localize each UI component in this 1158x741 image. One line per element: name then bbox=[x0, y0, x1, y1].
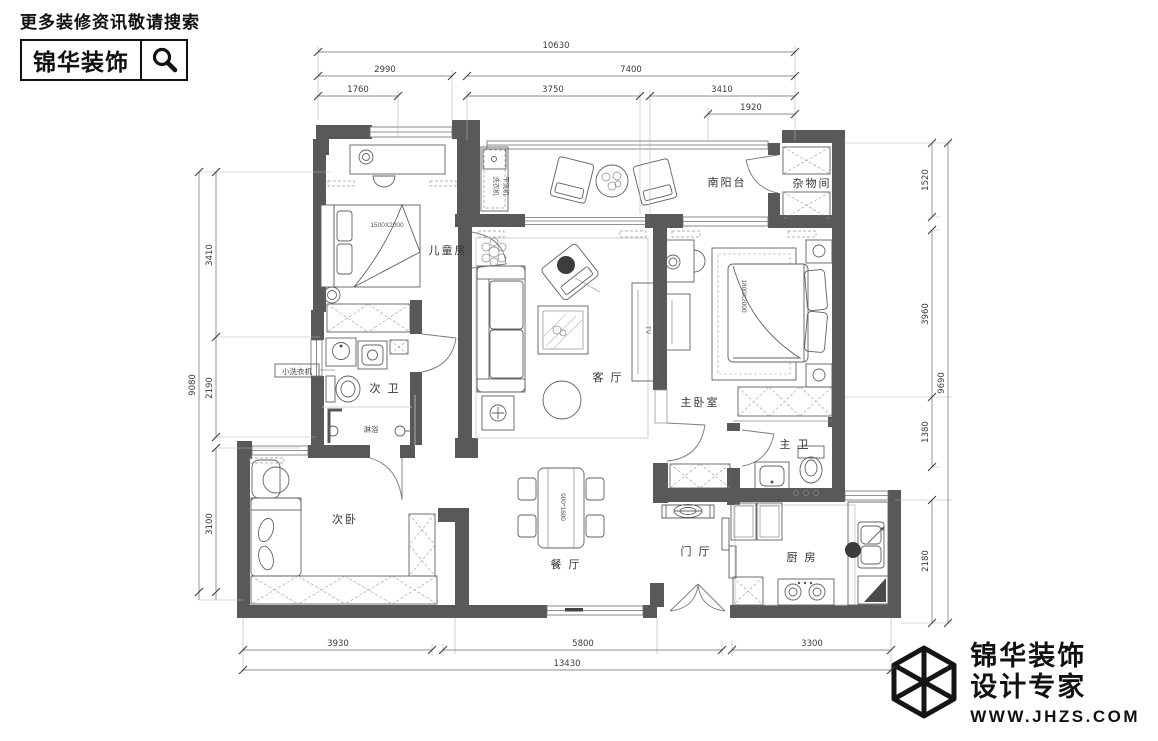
room-label-dining: 餐 厅 bbox=[550, 557, 581, 571]
dim-left-a: 3410 bbox=[205, 244, 215, 266]
second-bath-furniture bbox=[322, 304, 412, 443]
second-bath-door bbox=[422, 334, 456, 372]
master-bath-furniture bbox=[733, 421, 832, 496]
dim-right-b: 3960 bbox=[921, 303, 931, 325]
second-bedroom-furniture bbox=[250, 458, 437, 604]
child-bed-size-label: 1500X2000 bbox=[370, 222, 404, 229]
room-label-foyer: 门 厅 bbox=[680, 544, 711, 558]
dim-bottom-total: 13430 bbox=[553, 659, 580, 669]
dim-top-c: 3410 bbox=[711, 85, 733, 95]
foyer-furniture bbox=[662, 505, 714, 519]
plant bbox=[482, 238, 506, 266]
floor-edges bbox=[415, 238, 648, 445]
dim-bottom-a: 3930 bbox=[327, 639, 349, 649]
floorplan: 儿童房 南阳台 杂物间 客 厅 主卧室 主 卫 次 卫 次卧 餐 厅 门 厅 厨… bbox=[0, 0, 1158, 741]
dim-left-total: 9080 bbox=[188, 374, 198, 396]
room-label-second-bath: 次 卫 bbox=[369, 381, 400, 395]
master-bedroom-door bbox=[667, 423, 705, 461]
dim-top-r: 7400 bbox=[620, 65, 642, 75]
dim-left-c: 3100 bbox=[205, 513, 215, 535]
room-label-kitchen: 厨 房 bbox=[786, 551, 817, 564]
room-label-storage: 杂物间 bbox=[793, 176, 832, 190]
room-label-master-bath: 主 卫 bbox=[779, 438, 810, 451]
washer-label: 洗衣机 bbox=[492, 176, 501, 196]
tv-label: TV bbox=[644, 326, 651, 335]
entry-door bbox=[670, 584, 725, 611]
dim-left-b: 2190 bbox=[205, 377, 215, 399]
balcony-furniture bbox=[481, 147, 677, 211]
second-bedroom-door bbox=[370, 458, 402, 500]
dining-table-size-label: 900*1600 bbox=[559, 493, 566, 521]
room-label-living: 客 厅 bbox=[592, 370, 623, 384]
walls bbox=[237, 120, 901, 618]
living-room-furniture bbox=[477, 231, 657, 430]
dim-right-c: 1380 bbox=[921, 421, 931, 443]
dim-top-b: 3750 bbox=[542, 85, 564, 95]
room-label-second-bed: 次卧 bbox=[332, 512, 358, 526]
dim-right-d: 2180 bbox=[921, 550, 931, 572]
dim-bottom-b: 5800 bbox=[572, 639, 594, 649]
dim-top-l: 2990 bbox=[374, 65, 396, 75]
storage-room-door bbox=[746, 155, 778, 193]
dim-bottom-c: 3300 bbox=[801, 639, 823, 649]
shower-label: 淋浴 bbox=[364, 424, 379, 434]
dim-right-total: 9690 bbox=[937, 372, 947, 394]
balcony-sliding-door bbox=[525, 218, 650, 225]
dim-top-a: 1760 bbox=[347, 85, 369, 95]
room-label-balcony: 南阳台 bbox=[708, 175, 747, 189]
room-label-children: 儿童房 bbox=[429, 243, 468, 257]
dryer-label: 干洗机 bbox=[502, 176, 511, 196]
master-bath-door bbox=[742, 430, 774, 466]
room-label-master: 主卧室 bbox=[681, 395, 720, 409]
small-washer-label: 小洗衣机 bbox=[282, 366, 312, 376]
master-bed-size-label: 1800X2000 bbox=[740, 279, 747, 313]
dim-top-d: 1920 bbox=[740, 103, 762, 113]
dim-right-a: 1520 bbox=[921, 169, 931, 191]
dim-top-total: 10630 bbox=[542, 41, 569, 51]
